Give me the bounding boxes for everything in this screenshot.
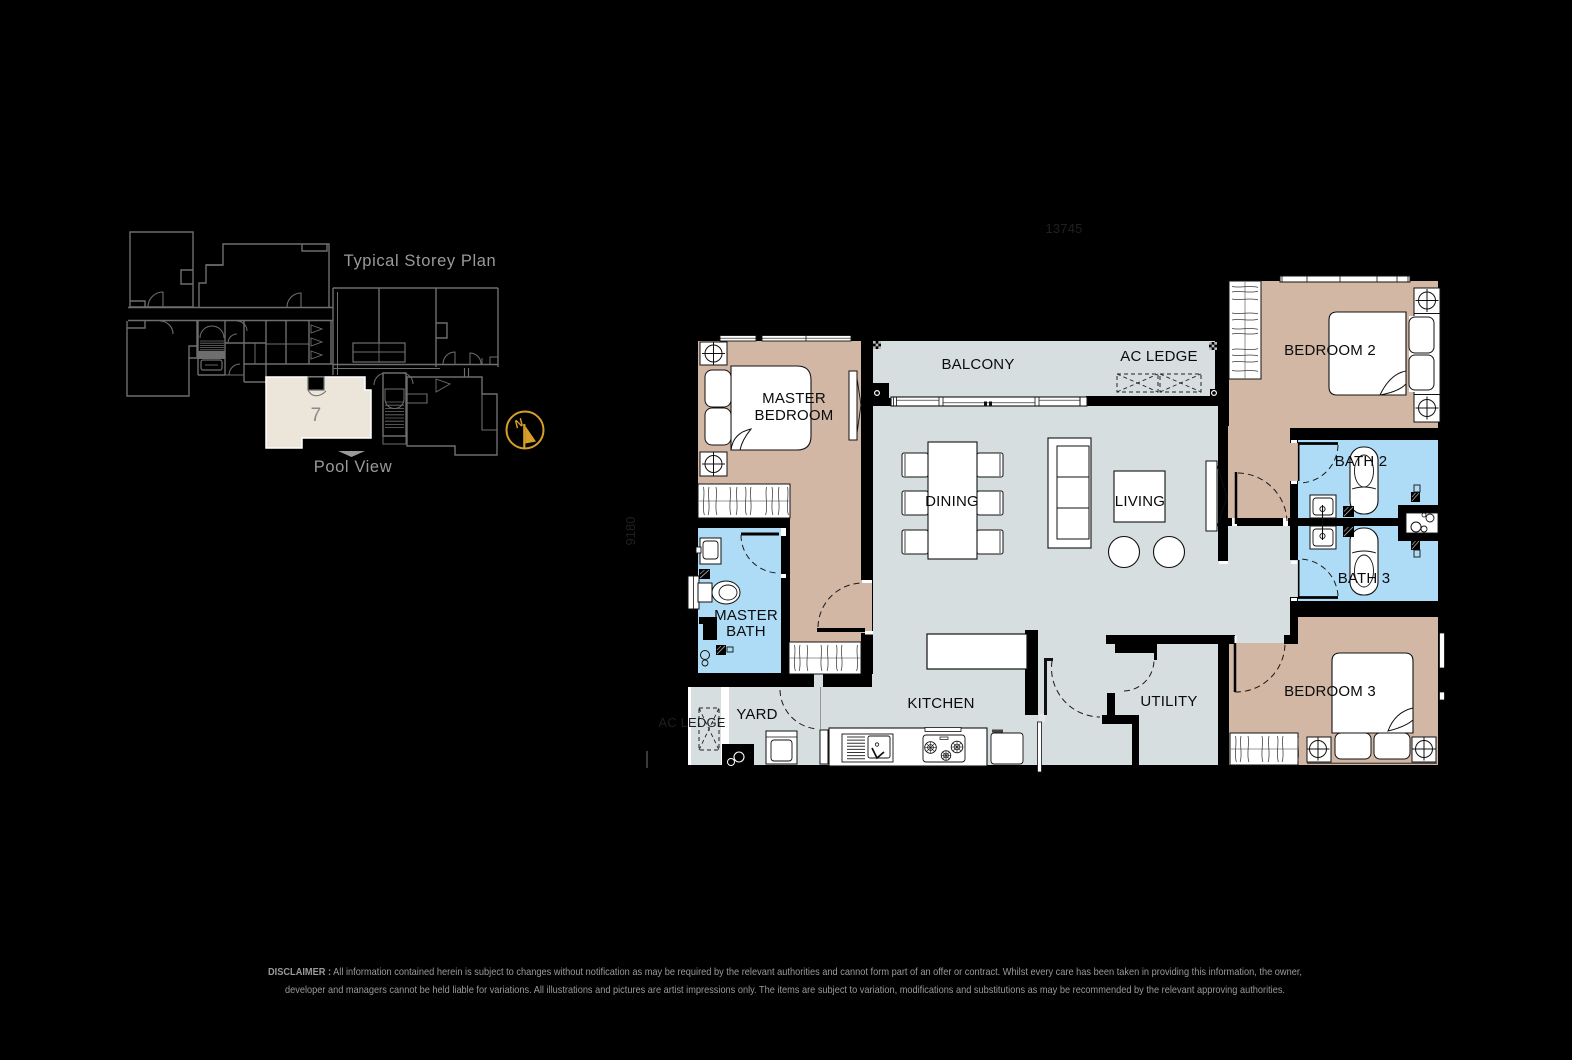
svg-text:9180: 9180 [623,517,638,546]
svg-text:YARD: YARD [736,706,777,723]
svg-text:LIVING: LIVING [1115,493,1165,510]
svg-text:UTILITY: UTILITY [1140,693,1197,710]
svg-text:Typical Storey Plan: Typical Storey Plan [344,252,497,270]
svg-text:BALCONY: BALCONY [941,356,1014,373]
svg-text:BATH 3: BATH 3 [1338,570,1391,587]
svg-text:AC LEDGE: AC LEDGE [1120,348,1197,365]
svg-text:DINING: DINING [925,493,979,510]
svg-text:AC LEDGE: AC LEDGE [658,715,725,730]
svg-text:BATH: BATH [726,623,766,640]
svg-text:Pool View: Pool View [314,458,392,476]
svg-text:BEDROOM: BEDROOM [755,407,834,424]
svg-text:BATH 2: BATH 2 [1335,453,1388,470]
svg-text:7: 7 [311,405,322,426]
svg-text:MASTER: MASTER [762,390,826,407]
svg-text:developer and managers cannot: developer and managers cannot be held li… [285,984,1285,996]
svg-text:BEDROOM 2: BEDROOM 2 [1284,342,1376,359]
svg-text:KITCHEN: KITCHEN [907,695,974,712]
svg-text:13745: 13745 [1045,221,1082,236]
svg-text:MASTER: MASTER [714,607,778,624]
svg-text:DISCLAIMER : All information c: DISCLAIMER : All information contained h… [268,966,1302,978]
svg-text:BEDROOM 3: BEDROOM 3 [1284,683,1376,700]
